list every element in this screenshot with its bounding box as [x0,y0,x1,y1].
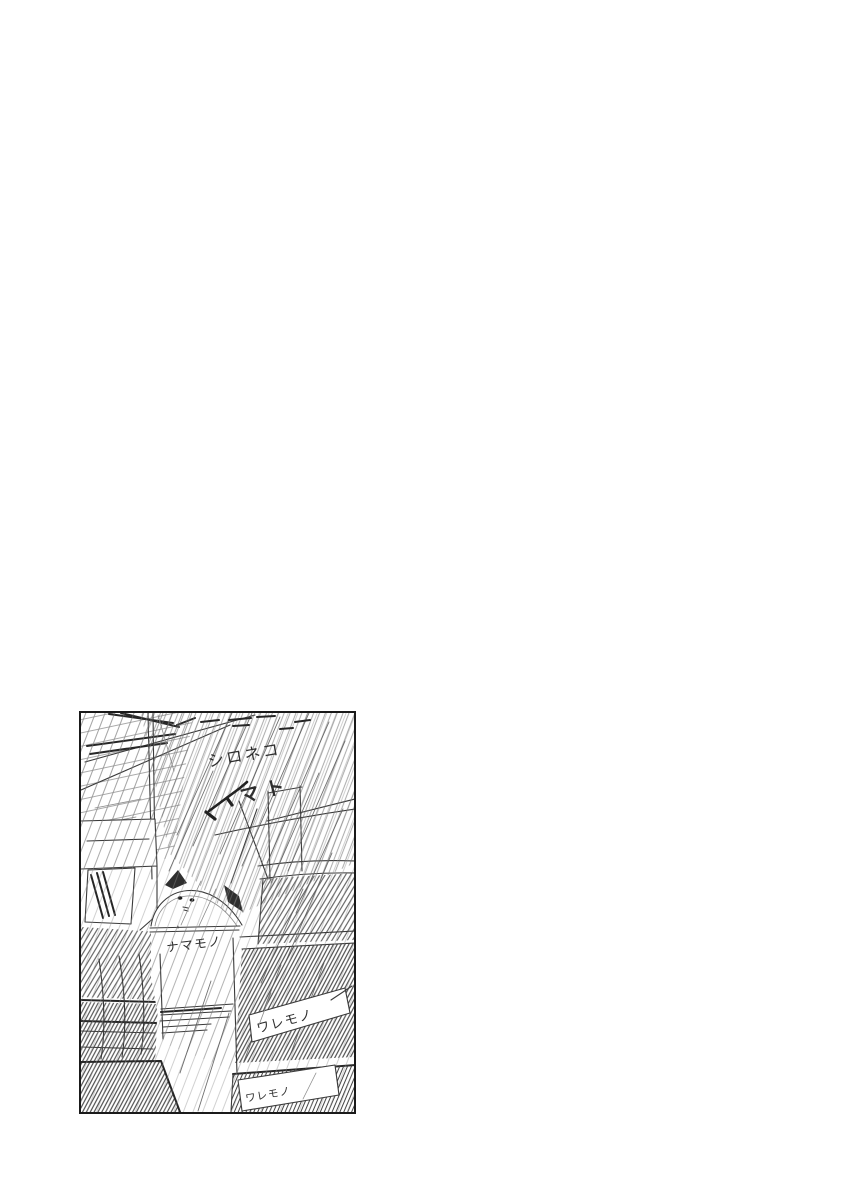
manga-page: ワレモノ ワレモノ シロネコ マト ナマモノ [0,0,847,1200]
sketch-panel: ワレモノ ワレモノ シロネコ マト ナマモノ [79,711,356,1114]
rain-hatching [81,713,354,1112]
sketch-drawing: ワレモノ ワレモノ シロネコ マト ナマモノ [81,713,354,1112]
